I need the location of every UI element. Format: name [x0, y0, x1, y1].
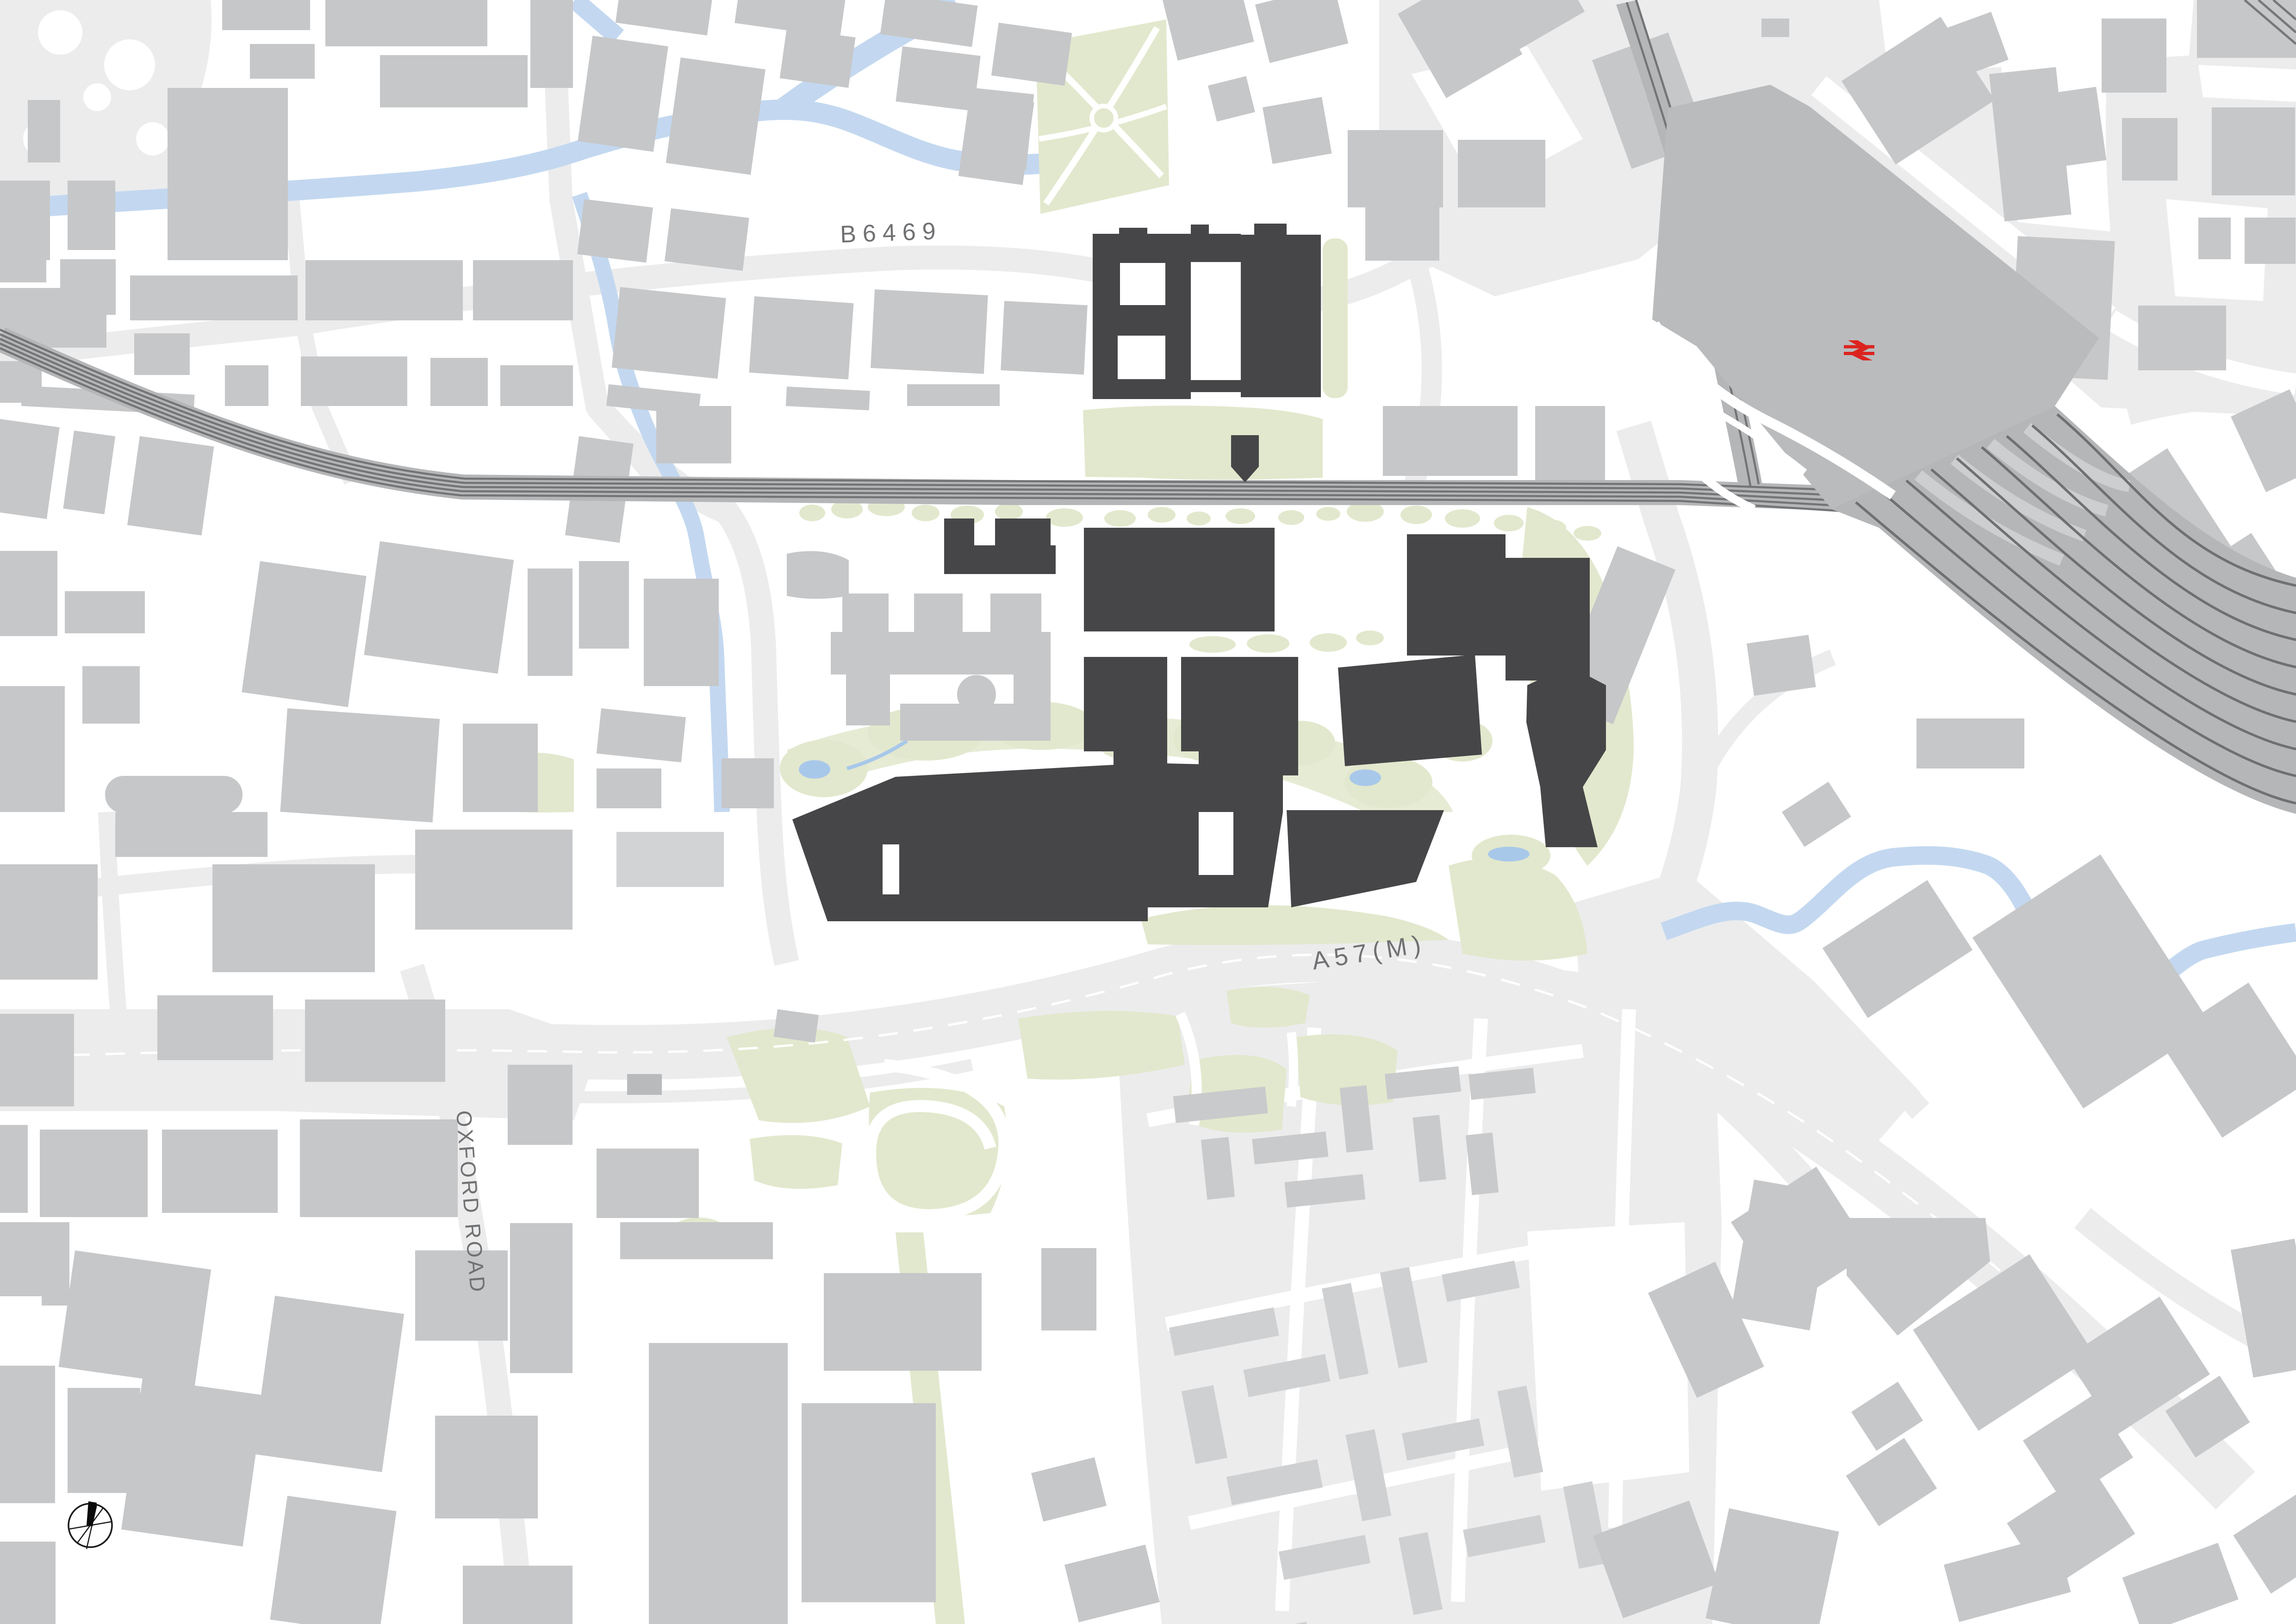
svg-text:B6469: B6469 — [840, 218, 942, 248]
